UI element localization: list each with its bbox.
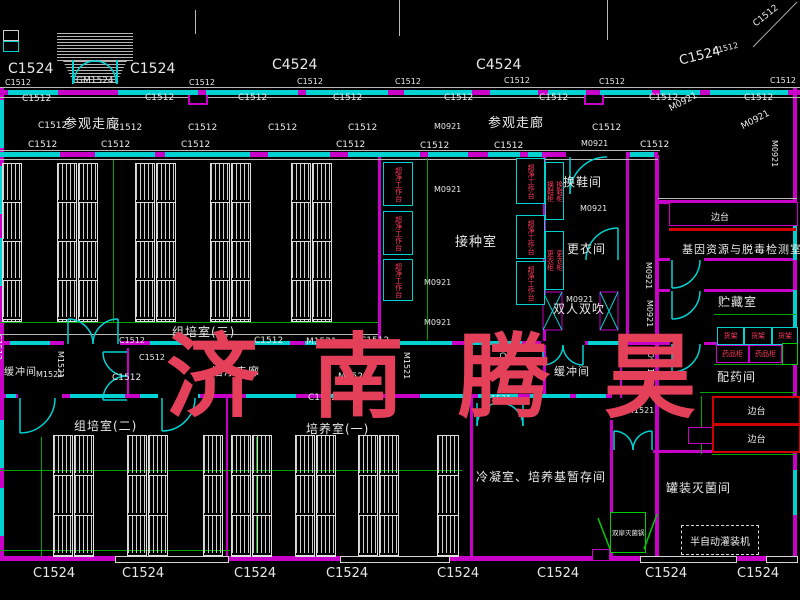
medicine-cabinet-label: 药品柜 xyxy=(755,349,776,359)
window-code-label: C1512 xyxy=(112,374,141,383)
window-code-label: C1512 xyxy=(28,141,57,150)
window-code-label: C1512 xyxy=(188,124,217,133)
window-code-label: C1524 xyxy=(645,567,687,580)
window-code-label: C1512 xyxy=(145,94,174,103)
room-label: 组培室(二) xyxy=(74,420,137,432)
reagent-cabinet xyxy=(782,343,798,365)
window-code-label: C1512 xyxy=(181,141,210,150)
sterilizer-funnel-lines xyxy=(598,514,657,549)
door-code-label: M0921 xyxy=(434,186,461,194)
clean-bench-label: 超净工作台 xyxy=(394,263,401,298)
clean-bench: 超净工作台 xyxy=(383,211,413,255)
clean-bench-label: 超净工作台 xyxy=(527,164,534,199)
window-code-label: C1512 xyxy=(189,79,215,87)
window-code-label: C1512 xyxy=(348,124,377,133)
shoe-cabinet: 换鞋柜换鞋柜 xyxy=(545,162,564,220)
window-code-label: C1512 xyxy=(599,78,625,86)
room-label: 参观走廊 xyxy=(64,118,120,131)
shoe-cabinet-label: 换鞋柜 xyxy=(556,181,563,202)
window-code-label: C4524 xyxy=(476,58,521,72)
room-label: 参观走廊 xyxy=(488,117,544,130)
door-code-label: M0921 xyxy=(580,205,607,213)
window-code-label: C1512 xyxy=(539,94,568,103)
room-label: 缓冲间 xyxy=(4,368,37,378)
window-code-label: C1524 xyxy=(8,62,53,76)
window-code-label: C1512 xyxy=(770,77,796,85)
window-code-label: C1512 xyxy=(268,124,297,133)
door-code-label: M1521 xyxy=(56,351,64,378)
room-label: 接种室 xyxy=(455,236,497,249)
window-code-label: C1524 xyxy=(122,567,164,580)
medicine-cabinet: 药品柜 xyxy=(749,345,782,363)
window-code-label: C1512 xyxy=(640,141,669,150)
clean-bench-label: 超净工作台 xyxy=(527,220,534,255)
clean-bench-label: 超净工作台 xyxy=(394,167,401,202)
door-code-label: M0921 xyxy=(434,123,461,131)
window-code-label: C1512 xyxy=(444,94,473,103)
side-bench-label: 边台 xyxy=(747,432,765,445)
clean-bench: 超净工作台 xyxy=(516,215,545,259)
side-bench-label: 边台 xyxy=(747,404,765,417)
room-label: 贮藏室 xyxy=(718,296,757,308)
clean-bench: 超净工作台 xyxy=(516,261,545,305)
window-code-label: C1524 xyxy=(33,567,75,580)
door-code-label: GM1524 xyxy=(76,77,114,86)
window-code-label: C1512 xyxy=(744,94,773,103)
window-code-label: C1512 xyxy=(22,95,51,104)
window-code-label: C1524 xyxy=(234,567,276,580)
window-code-label: C1512 xyxy=(420,142,449,151)
room-label: 冷凝室、培养基暂存间 xyxy=(476,471,606,483)
room-label: 基因资源与脱毒检测室 xyxy=(682,244,800,255)
window-code-label: C1512 xyxy=(297,78,323,86)
window-code-label: C1512 xyxy=(0,334,2,360)
door-code-label: M0921 xyxy=(644,262,652,289)
window-code-label: C1512 xyxy=(494,142,523,151)
window-code-label: C1512 xyxy=(395,78,421,86)
room-label: 换鞋间 xyxy=(563,176,602,188)
window-code-label: C1512 xyxy=(333,94,362,103)
watermark-text: 济南腾昊 xyxy=(166,332,750,424)
locker-cabinet-label: 更衣柜 xyxy=(546,250,553,271)
door-code-label: M0921 xyxy=(581,140,608,148)
locker-cabinet-label: 更衣柜 xyxy=(556,250,563,271)
window-code-label: C1512 xyxy=(101,141,130,150)
window-code-label: C4524 xyxy=(272,58,317,72)
room-label: 罐装灭菌间 xyxy=(666,482,731,494)
clean-bench: 超净工作台 xyxy=(383,259,413,301)
window-code-label: C1512 xyxy=(238,94,267,103)
clean-bench: 超净工作台 xyxy=(516,158,545,204)
window-code-label: C1512 xyxy=(5,79,31,87)
window-code-label: C1512 xyxy=(336,141,365,150)
room-label: 更衣间 xyxy=(567,243,606,255)
window-code-label: C1512 xyxy=(504,77,530,85)
window-code-label: C1524 xyxy=(737,567,779,580)
window-code-label: C1512 xyxy=(38,122,67,131)
room-label: 双人双吹 xyxy=(553,303,605,315)
shelf-label: 货架 xyxy=(778,331,792,341)
window-code-label: C1524 xyxy=(326,567,368,580)
window-code-label: C1524 xyxy=(437,567,479,580)
door-code-label: M0921 xyxy=(770,140,778,167)
window-code-label: C1512 xyxy=(592,124,621,133)
window-code-label: C1512 xyxy=(139,354,165,362)
clean-bench-label: 超净工作台 xyxy=(394,216,401,251)
shoe-cabinet-label: 换鞋柜 xyxy=(546,181,553,202)
locker-cabinet: 更衣柜更衣柜 xyxy=(545,231,564,290)
window-code-label: C1524 xyxy=(537,567,579,580)
clean-bench: 超净工作台 xyxy=(383,162,413,206)
cad-floorplan-canvas[interactable]: 济南腾昊 xyxy=(0,0,800,600)
window-code-label: C1524 xyxy=(130,62,175,76)
clean-bench-label: 超净工作台 xyxy=(527,266,534,301)
door-code-label: M0921 xyxy=(424,279,451,287)
window-code-label: C1512 xyxy=(119,337,145,345)
shelf-label: 货架 xyxy=(751,331,765,341)
